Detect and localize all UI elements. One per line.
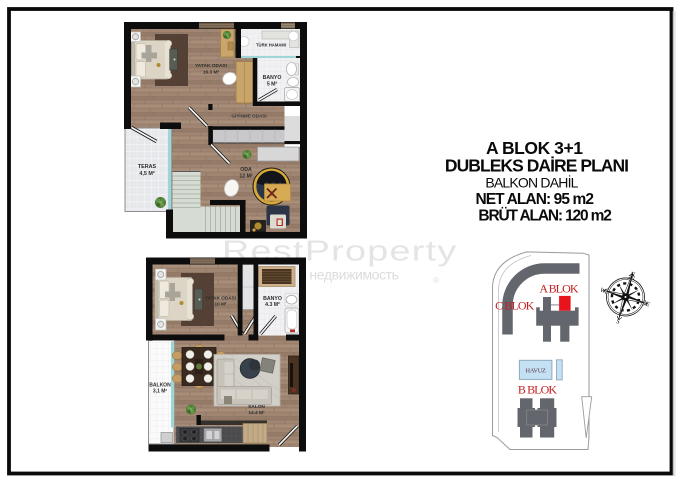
svg-text:4.3 M²: 4.3 M² [265, 302, 280, 308]
svg-text:GİYİNME ODASI: GİYİNME ODASI [231, 113, 266, 119]
svg-text:12 M²: 12 M² [239, 174, 253, 180]
svg-text:SALON: SALON [248, 404, 265, 410]
svg-text:TERAS: TERAS [138, 164, 157, 170]
svg-text:5 M²: 5 M² [267, 82, 278, 88]
svg-text:A BLOK: A BLOK [539, 282, 579, 296]
svg-text:C BLOK: C BLOK [495, 299, 535, 313]
svg-text:BRÜT ALAN: 120 m2: BRÜT ALAN: 120 m2 [478, 208, 611, 225]
svg-text:BALKON DAHİL: BALKON DAHİL [485, 174, 578, 191]
svg-text:NET ALAN: 95 m2: NET ALAN: 95 m2 [475, 191, 593, 208]
svg-text:4,5 M²: 4,5 M² [139, 171, 154, 177]
svg-text:14.4 M²: 14.4 M² [248, 410, 265, 416]
svg-text:HAVUZ: HAVUZ [525, 368, 546, 375]
svg-text:®: ® [433, 276, 439, 285]
svg-text:YATAK ODASI: YATAK ODASI [195, 63, 228, 69]
svg-text:3,1 M²: 3,1 M² [153, 389, 168, 395]
svg-text:10 M²: 10 M² [215, 302, 227, 307]
svg-text:DUBLEKS DAİRE PLANI: DUBLEKS DAİRE PLANI [445, 156, 628, 176]
svg-text:B BLOK: B BLOK [518, 383, 558, 397]
svg-text:YATAK ODASI: YATAK ODASI [205, 296, 236, 301]
svg-text:BANYO: BANYO [263, 75, 282, 81]
svg-text:16.3 M²: 16.3 M² [203, 70, 220, 76]
svg-text:TÜRK HAMAMI: TÜRK HAMAMI [256, 43, 286, 48]
svg-text:ODA: ODA [240, 167, 252, 173]
